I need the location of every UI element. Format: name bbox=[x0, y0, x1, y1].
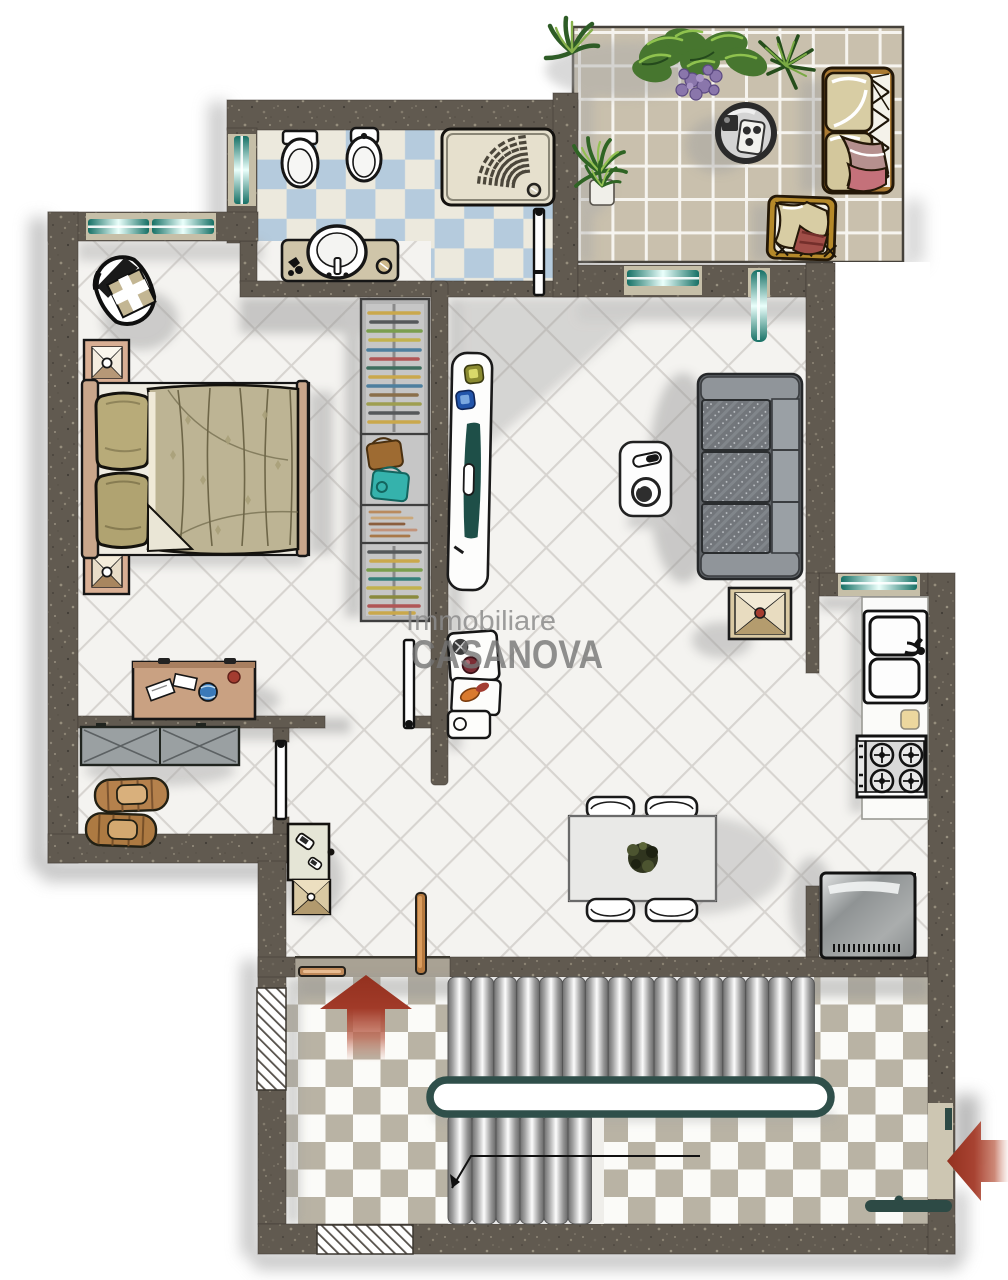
svg-text:CASANOVA: CASANOVA bbox=[411, 633, 603, 677]
svg-text:Immobiliare: Immobiliare bbox=[406, 605, 556, 636]
